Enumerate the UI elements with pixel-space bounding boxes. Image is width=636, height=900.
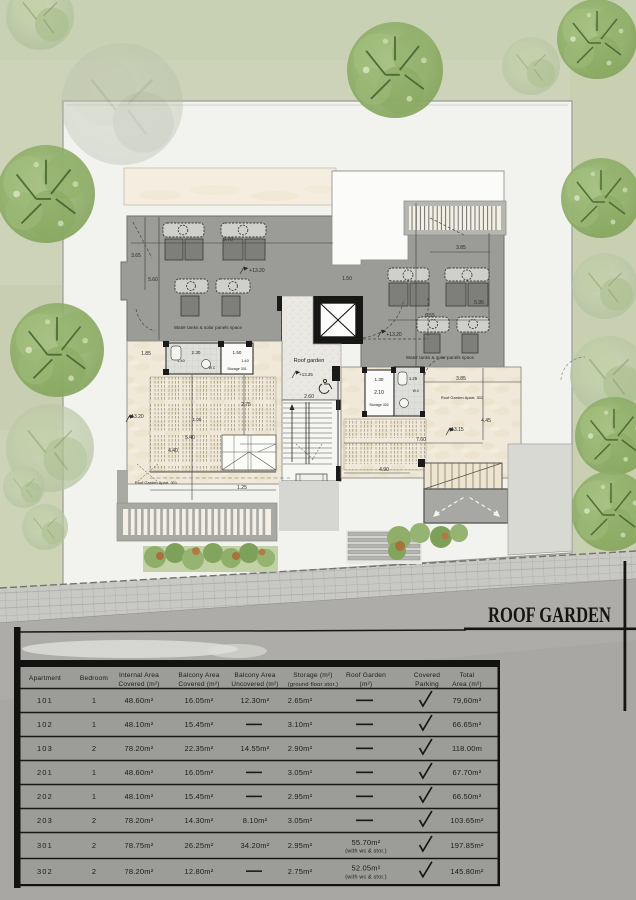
- svg-text:1.30: 1.30: [375, 377, 384, 382]
- svg-text:(ground floor stor.): (ground floor stor.): [288, 682, 338, 688]
- svg-text:4.45: 4.45: [481, 418, 491, 424]
- svg-text:5.95: 5.95: [474, 300, 484, 306]
- svg-text:6.55: 6.55: [425, 313, 435, 319]
- svg-text:Roof Garden: Roof Garden: [346, 672, 386, 679]
- svg-text:Apartment: Apartment: [29, 675, 61, 682]
- svg-text:5.40: 5.40: [185, 435, 195, 441]
- svg-text:103: 103: [37, 744, 53, 753]
- svg-text:1: 1: [92, 768, 96, 777]
- svg-text:2.95m²: 2.95m²: [288, 841, 313, 850]
- svg-text:78.20m²: 78.20m²: [125, 816, 154, 825]
- svg-text:ROOF GARDEN: ROOF GARDEN: [488, 602, 611, 627]
- svg-text:(m²): (m²): [360, 681, 373, 688]
- svg-text:3.85: 3.85: [456, 245, 466, 251]
- svg-text:Bedroom: Bedroom: [80, 675, 108, 682]
- svg-text:1.25: 1.25: [409, 376, 418, 381]
- svg-text:Storage 301: Storage 301: [227, 367, 247, 371]
- svg-text:16.05m²: 16.05m²: [185, 696, 214, 705]
- svg-text:2.60: 2.60: [304, 394, 314, 400]
- svg-text:9.70: 9.70: [223, 237, 233, 243]
- svg-text:3.05m²: 3.05m²: [288, 768, 313, 777]
- svg-text:201: 201: [37, 768, 53, 777]
- svg-text:48.10m²: 48.10m²: [125, 720, 154, 729]
- svg-text:78.75m²: 78.75m²: [125, 841, 154, 850]
- svg-text:55.70m²: 55.70m²: [352, 838, 381, 847]
- svg-text:Storage 302: Storage 302: [369, 403, 389, 407]
- svg-text:203: 203: [37, 816, 53, 825]
- svg-text:202: 202: [37, 792, 53, 801]
- svg-text:2.30: 2.30: [192, 350, 201, 355]
- svg-text:3.85: 3.85: [456, 376, 466, 382]
- svg-text:1.50: 1.50: [233, 350, 242, 355]
- svg-text:Water tanks & solar panels spa: Water tanks & solar panels space: [174, 325, 243, 330]
- svg-text:Balcony Area: Balcony Area: [234, 672, 275, 679]
- svg-text:1: 1: [92, 792, 96, 801]
- svg-text:78.20m²: 78.20m²: [125, 744, 154, 753]
- svg-text:67.70m²: 67.70m²: [453, 768, 482, 777]
- svg-text:15.45m²: 15.45m²: [185, 720, 214, 729]
- svg-text:Covered (m²): Covered (m²): [118, 681, 159, 688]
- svg-text:3.65: 3.65: [131, 253, 141, 259]
- svg-text:15.45m²: 15.45m²: [185, 792, 214, 801]
- svg-text:3.05m²: 3.05m²: [288, 816, 313, 825]
- svg-text:(with wc & stor.): (with wc & stor.): [345, 849, 386, 855]
- svg-text:W.C: W.C: [209, 366, 216, 370]
- svg-text:102: 102: [37, 720, 53, 729]
- svg-text:301: 301: [37, 841, 53, 850]
- svg-text:16.05m²: 16.05m²: [185, 768, 214, 777]
- svg-text:14.55m²: 14.55m²: [241, 744, 270, 753]
- svg-text:Storage (m²): Storage (m²): [293, 672, 332, 679]
- svg-text:79,60m²: 79,60m²: [453, 696, 482, 705]
- svg-text:1: 1: [92, 696, 96, 705]
- svg-text:52.05m²: 52.05m²: [352, 864, 381, 873]
- svg-text:Roof Garden Apart. 302: Roof Garden Apart. 302: [441, 395, 484, 400]
- svg-text:48.60m²: 48.60m²: [125, 768, 154, 777]
- svg-text:78.20m²: 78.20m²: [125, 867, 154, 876]
- svg-text:103.65m²: 103.65m²: [450, 816, 484, 825]
- svg-text:1.50: 1.50: [342, 276, 352, 282]
- svg-text:145.80m²: 145.80m²: [450, 867, 484, 876]
- svg-text:5.60: 5.60: [148, 277, 158, 283]
- svg-text:2: 2: [92, 867, 96, 876]
- svg-text:1.40: 1.40: [241, 358, 250, 363]
- svg-text:12.80m²: 12.80m²: [185, 867, 214, 876]
- svg-text:+13.25: +13.25: [299, 372, 313, 377]
- svg-text:Covered (m²): Covered (m²): [178, 681, 219, 688]
- svg-text:7.60: 7.60: [416, 437, 426, 443]
- svg-text:+13.20: +13.20: [249, 268, 265, 274]
- svg-text:14.30m²: 14.30m²: [185, 816, 214, 825]
- svg-text:1: 1: [92, 720, 96, 729]
- svg-text:Covered: Covered: [414, 672, 440, 679]
- svg-text:Total: Total: [460, 672, 475, 679]
- svg-text:2: 2: [92, 816, 96, 825]
- svg-text:Balcony Area: Balcony Area: [178, 672, 219, 679]
- svg-text:2.95m²: 2.95m²: [288, 792, 313, 801]
- svg-text:66.50m²: 66.50m²: [453, 792, 482, 801]
- svg-text:+13.20: +13.20: [386, 332, 402, 338]
- svg-text:Area (m²): Area (m²): [452, 681, 482, 688]
- svg-text:101: 101: [37, 696, 53, 705]
- svg-text:2.90m²: 2.90m²: [288, 744, 313, 753]
- svg-text:2.75m²: 2.75m²: [288, 867, 313, 876]
- svg-text:Uncovered (m²): Uncovered (m²): [231, 681, 278, 688]
- svg-text:302: 302: [37, 867, 53, 876]
- svg-text:2: 2: [92, 744, 96, 753]
- svg-text:12.30m²: 12.30m²: [241, 696, 270, 705]
- svg-text:2: 2: [92, 841, 96, 850]
- svg-text:1.85: 1.85: [141, 351, 151, 357]
- svg-text:W.C: W.C: [413, 389, 420, 393]
- svg-text:8.10m²: 8.10m²: [243, 816, 268, 825]
- svg-text:1.05: 1.05: [193, 417, 202, 422]
- svg-text:2.75: 2.75: [241, 402, 251, 408]
- svg-text:4.40: 4.40: [168, 448, 178, 454]
- svg-text:Parking: Parking: [415, 681, 439, 688]
- svg-text:26.25m²: 26.25m²: [185, 841, 214, 850]
- svg-text:1.40: 1.40: [177, 358, 186, 363]
- svg-text:Roof garden: Roof garden: [294, 358, 325, 364]
- svg-text:2.65m²: 2.65m²: [288, 696, 313, 705]
- svg-text:48.10m²: 48.10m²: [125, 792, 154, 801]
- svg-text:22.35m²: 22.35m²: [185, 744, 214, 753]
- svg-text:34.20m²: 34.20m²: [241, 841, 270, 850]
- svg-text:Internal Area: Internal Area: [119, 672, 159, 679]
- svg-text:48.60m²: 48.60m²: [125, 696, 154, 705]
- svg-text:197.85m²: 197.85m²: [450, 841, 484, 850]
- svg-text:1.25: 1.25: [237, 485, 247, 491]
- svg-text:3.10m²: 3.10m²: [288, 720, 313, 729]
- svg-text:66.65m²: 66.65m²: [453, 720, 482, 729]
- svg-text:4.90: 4.90: [379, 467, 389, 473]
- svg-text:118.00m: 118.00m: [452, 744, 482, 753]
- svg-text:2.10: 2.10: [374, 390, 384, 396]
- svg-text:(with wc & stor.): (with wc & stor.): [345, 874, 386, 880]
